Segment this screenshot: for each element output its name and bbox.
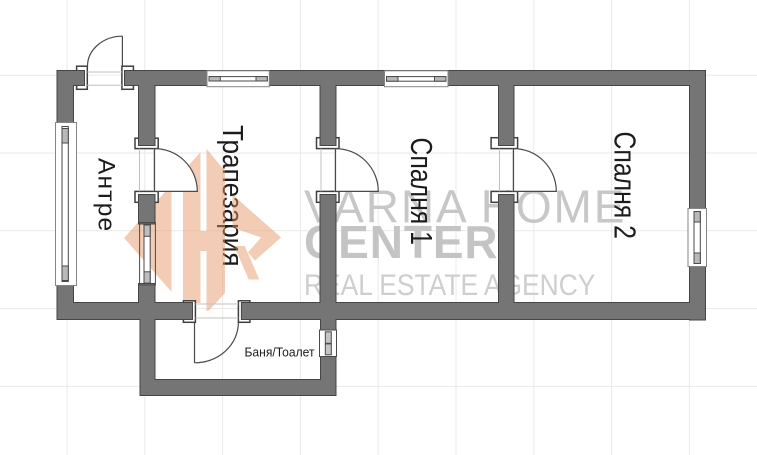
svg-text:Спалня 2: Спалня 2 [608,132,642,239]
svg-text:Спалня 1: Спалня 1 [404,138,438,245]
svg-text:Баня/Тоалет: Баня/Тоалет [245,345,315,359]
svg-text:REAL ESTATE AGENCY: REAL ESTATE AGENCY [304,269,596,302]
svg-text:Антре: Антре [92,158,119,232]
